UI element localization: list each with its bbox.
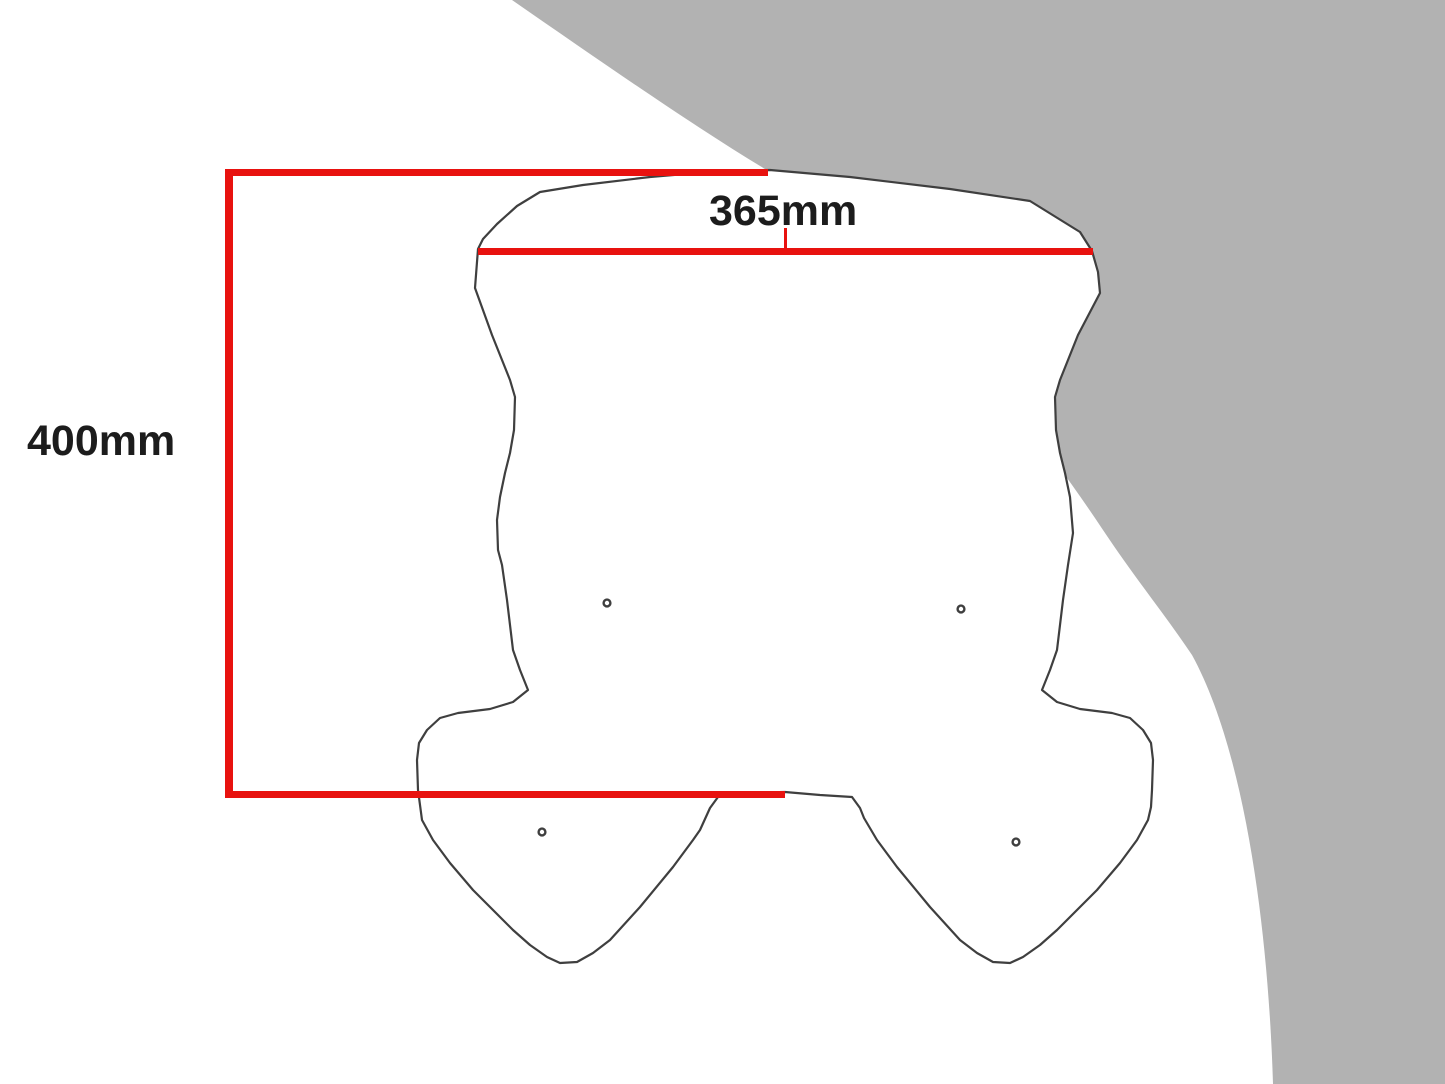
width-dimension-label: 365mm <box>709 190 857 233</box>
mounting-hole-bottom-right <box>1013 839 1020 846</box>
mounting-hole-top-right <box>958 606 965 613</box>
height-dimension-vertical-line <box>225 169 233 798</box>
windscreen-diagram-svg <box>0 0 1445 1084</box>
mounting-hole-top-left <box>604 600 611 607</box>
height-dimension-bottom-tick-line <box>225 791 785 798</box>
mounting-hole-bottom-left <box>539 829 546 836</box>
windscreen-outline <box>417 170 1153 963</box>
diagram-canvas <box>0 0 1445 1084</box>
height-dimension-top-tick-line <box>225 169 768 176</box>
height-dimension-label: 400mm <box>27 420 175 463</box>
